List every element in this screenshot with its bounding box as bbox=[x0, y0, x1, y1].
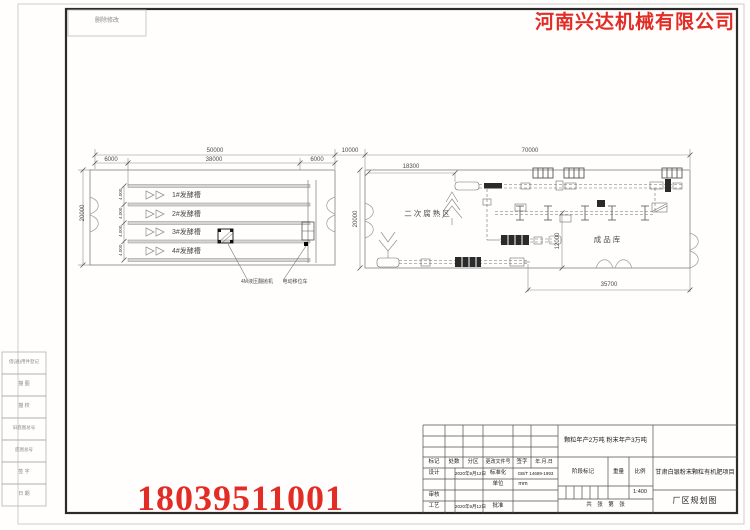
tb-sheet-note: 共 张 第 张 bbox=[560, 503, 651, 509]
tb-process-label: 工艺 bbox=[424, 504, 444, 510]
tank-2-label: 2#发酵槽 bbox=[172, 211, 212, 218]
dim-channel-4: 4.000 bbox=[119, 239, 124, 261]
tb-review-label: 审核 bbox=[424, 493, 444, 499]
cad-linework bbox=[0, 0, 750, 530]
dim-right-bay: 6000 bbox=[299, 157, 335, 163]
dim-bottom: 35700 bbox=[584, 282, 634, 288]
tb-stage-label: 阶段标记 bbox=[560, 470, 606, 476]
margin-label-check: 描 校 bbox=[2, 404, 46, 409]
dim-height-right: 20000 bbox=[353, 198, 359, 240]
tb-project-name: 甘肃白银粉末颗粒有机肥项目 bbox=[655, 470, 735, 476]
tb-header-zone: 分区 bbox=[464, 460, 482, 466]
dim-inner: 18300 bbox=[388, 164, 434, 170]
tb-header-date: 年.月.日 bbox=[531, 460, 557, 465]
margin-label-parts-register: 借(通)用件登记 bbox=[2, 360, 46, 365]
dim-left-bay: 6000 bbox=[93, 157, 129, 163]
revision-note: 删除修改 bbox=[70, 18, 144, 24]
company-name: 河南兴达机械有限公司 bbox=[532, 13, 738, 32]
tb-header-count: 处数 bbox=[446, 460, 462, 466]
tb-scale-value: 1:400 bbox=[629, 490, 651, 496]
dim-height-left: 20000 bbox=[80, 192, 86, 234]
phone-number: 18039511001 bbox=[137, 480, 327, 516]
tb-standard-label: 标准化 bbox=[484, 471, 512, 477]
margin-label-trace: 描 图 bbox=[2, 382, 46, 387]
dim-store-height: 12000 bbox=[555, 220, 561, 262]
tb-weight-label: 重量 bbox=[608, 470, 629, 476]
tb-unit-label: 单位 bbox=[484, 482, 512, 488]
tank-4-label: 4#发酵槽 bbox=[172, 248, 212, 255]
tb-header-change-no: 更改文件号 bbox=[483, 460, 513, 465]
tb-unit-value: mm bbox=[513, 482, 533, 488]
dim-mid-bay: 38000 bbox=[184, 157, 244, 163]
tb-standard-value: GB/T 14689-1993 bbox=[513, 472, 558, 477]
margin-label-old-base-no: 旧底图总号 bbox=[2, 426, 46, 431]
tb-capacity: 颗粒年产2万吨 粉末年产3万吨 bbox=[560, 438, 651, 444]
tb-approve-label: 批准 bbox=[484, 504, 512, 510]
tb-design-date: 2020年9月12日 bbox=[455, 472, 483, 477]
tank-1-label: 1#发酵槽 bbox=[172, 192, 212, 199]
margin-label-base-no: 底图总号 bbox=[2, 448, 46, 453]
tb-header-mark: 标记 bbox=[424, 460, 444, 466]
tb-drawing-title: 厂区规划图 bbox=[655, 497, 735, 505]
tb-header-sign: 签字 bbox=[514, 460, 530, 466]
tb-process-date: 2020年9月12日 bbox=[455, 505, 483, 510]
drawing-sheet: 删除修改 河南兴达机械有限公司 18039511001 借(通)用件登记 描 图… bbox=[0, 0, 750, 530]
area-label-warehouse: 成品库 bbox=[586, 236, 630, 244]
tank-3-label: 3#发酵槽 bbox=[172, 229, 212, 236]
tb-design-label: 设计 bbox=[424, 471, 444, 477]
callout-transfer-car: 电动移位车 bbox=[278, 280, 312, 285]
dim-total-width-right: 70000 bbox=[505, 148, 555, 154]
dim-gap: 10000 bbox=[331, 148, 369, 154]
callout-turner: 4M液压翻抛机 bbox=[236, 280, 278, 285]
area-label-maturation: 二次腐熟区 bbox=[398, 210, 458, 218]
margin-label-sign: 签 字 bbox=[2, 470, 46, 475]
dim-total-width-left: 50000 bbox=[185, 148, 245, 154]
margin-label-date: 日 期 bbox=[2, 492, 46, 497]
tb-scale-label: 比例 bbox=[629, 470, 651, 476]
